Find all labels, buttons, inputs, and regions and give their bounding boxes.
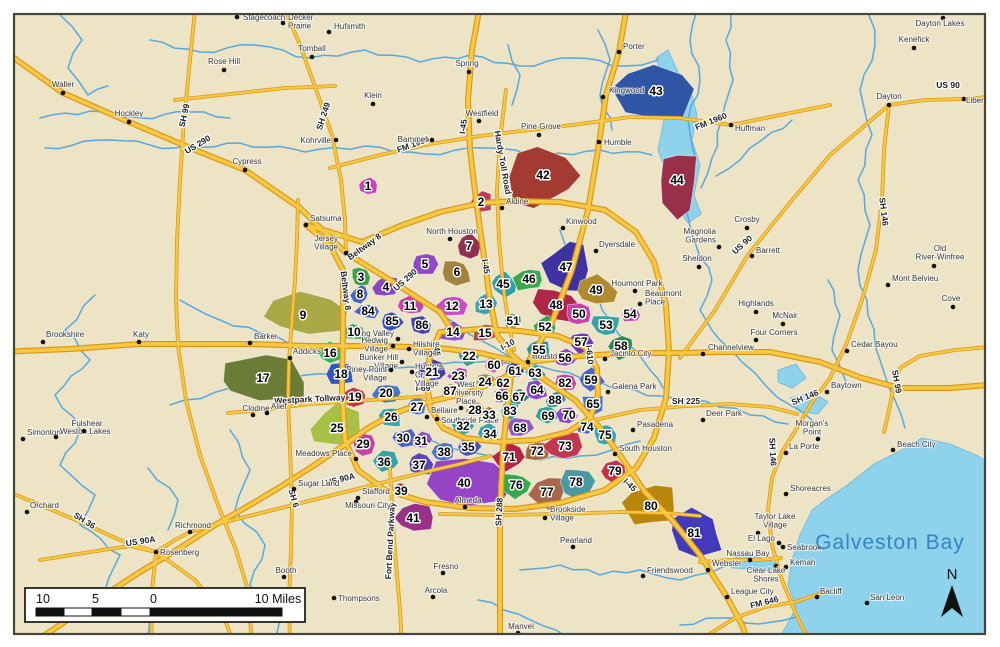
district-marker-62: 62 <box>496 376 510 390</box>
town-label-stafford: Stafford <box>362 487 390 496</box>
town-dot-beach-city <box>891 448 896 453</box>
town-dot-simonton <box>21 437 26 442</box>
district-marker-24: 24 <box>478 375 492 389</box>
district-marker-64: 64 <box>530 383 544 397</box>
town-dot-waller <box>61 91 66 96</box>
town-label-fresno: Fresno <box>434 562 459 571</box>
bay-label: Galveston Bay <box>815 531 965 554</box>
town-dot-highlands <box>754 310 759 315</box>
road-label-sh-146: SH 146 <box>767 437 778 466</box>
town-dot-cedar-bayou <box>845 349 850 354</box>
town-dot-addicks <box>288 356 293 361</box>
district-marker-86: 86 <box>415 318 429 332</box>
town-dot-galena-park <box>606 390 611 395</box>
town-label-hedwig-village: HedwigVillage <box>361 336 388 354</box>
town-label-mcnair: McNair <box>772 311 798 320</box>
town-label-manvel: Manvel <box>508 622 534 631</box>
town-dot-hockley <box>127 120 132 125</box>
district-marker-65: 65 <box>586 397 600 411</box>
town-label-alief: Alief <box>271 402 287 411</box>
town-label-almeda: Almeda <box>454 496 482 505</box>
district-marker-68: 68 <box>513 421 527 435</box>
district-marker-87: 87 <box>443 384 457 398</box>
scale-segment <box>121 608 150 616</box>
scale-tick-5: 5 <box>92 592 99 606</box>
district-marker-23: 23 <box>451 369 465 383</box>
town-label-satsuma: Satsuma <box>310 214 342 223</box>
district-marker-85: 85 <box>385 314 399 328</box>
district-marker-78: 78 <box>569 475 583 489</box>
district-marker-4: 4 <box>383 280 390 294</box>
town-label-klein: Klein <box>364 91 382 100</box>
district-marker-3: 3 <box>358 270 365 284</box>
town-dot-klein <box>371 102 376 107</box>
district-marker-63: 63 <box>528 366 542 380</box>
town-dot-booth <box>282 575 287 580</box>
town-label-missouri-city: Missouri City <box>345 501 391 510</box>
town-dot-hilshire-village <box>407 347 412 352</box>
district-marker-10: 10 <box>347 325 361 339</box>
town-label-spring: Spring <box>455 59 478 68</box>
district-marker-29: 29 <box>356 437 370 451</box>
town-dot-webster <box>706 568 711 573</box>
district-marker-28: 28 <box>468 403 482 417</box>
town-dot-westfield <box>477 119 482 124</box>
town-label-liberty: Liberty <box>966 96 990 105</box>
town-label-highlands: Highlands <box>738 299 774 308</box>
town-label-thompsons: Thompsons <box>338 594 380 603</box>
district-marker-39: 39 <box>394 484 408 498</box>
town-dot-houmont-park <box>633 289 638 294</box>
town-dot-katy <box>137 340 142 345</box>
district-marker-80: 80 <box>644 499 658 513</box>
town-dot-beaumont-place <box>638 302 643 307</box>
town-label-crosby: Crosby <box>734 215 759 224</box>
town-label-hockley: Hockley <box>115 109 143 118</box>
town-label-addicks: Addicks <box>293 347 321 356</box>
town-dot-kingwood <box>601 95 606 100</box>
district-marker-49: 49 <box>589 283 603 297</box>
district-marker-74: 74 <box>580 420 594 434</box>
town-label-tomball: Tomball <box>298 44 326 53</box>
road-label-sh-225: SH 225 <box>672 396 701 406</box>
town-label-fulshear: Fulshear <box>71 419 102 428</box>
town-label-pine-grove: Pine Grove <box>521 122 562 131</box>
town-dot-north-houston <box>448 237 453 242</box>
district-marker-81: 81 <box>687 526 701 540</box>
town-label-richmond: Richmond <box>175 521 211 530</box>
town-label-four-corners: Four Corners <box>750 328 797 337</box>
town-label-katy: Katy <box>133 330 149 339</box>
town-dot-aldine <box>500 206 505 211</box>
town-label-dayton-lakes: Dayton Lakes <box>916 19 965 28</box>
town-dot-friendswood <box>641 574 646 579</box>
town-dot-kenefick <box>912 46 917 51</box>
district-marker-46: 46 <box>522 272 536 286</box>
town-label-brookshire: Brookshire <box>46 330 85 339</box>
town-label-rose-hill: Rose Hill <box>208 57 240 66</box>
district-marker-6: 6 <box>454 265 461 279</box>
district-marker-50: 50 <box>572 307 586 321</box>
town-dot-arcola <box>431 595 436 600</box>
district-marker-60: 60 <box>487 358 501 372</box>
town-label-magnolia-gardens: MagnoliaGardens <box>684 227 717 245</box>
district-marker-26: 26 <box>384 410 398 424</box>
town-dot-pine-grove <box>537 133 542 138</box>
district-marker-75: 75 <box>598 428 612 442</box>
district-marker-40: 40 <box>457 476 471 490</box>
district-marker-30: 30 <box>396 431 410 445</box>
scale-segment <box>64 608 92 616</box>
district-marker-36: 36 <box>377 455 391 469</box>
district-marker-41: 41 <box>406 511 420 525</box>
town-label-arcola: Arcola <box>425 586 448 595</box>
town-label-decker-prairie: DeckerPrairie <box>288 13 314 31</box>
town-dot-barrett <box>750 254 755 259</box>
town-dot-nassau-bay <box>748 558 753 563</box>
district-marker-32: 32 <box>456 419 470 433</box>
town-label-houmont-park: Houmont Park <box>611 279 663 288</box>
district-marker-76: 76 <box>509 478 523 492</box>
district-marker-15: 15 <box>478 326 492 340</box>
town-dot-porter <box>617 50 622 55</box>
town-dot-southside-place <box>435 417 440 422</box>
district-marker-33: 33 <box>482 408 496 422</box>
town-dot-thompsons <box>332 596 337 601</box>
district-marker-77: 77 <box>540 485 554 499</box>
town-label-sugar-land: Sugar Land <box>298 479 339 488</box>
scale-tick-0: 0 <box>150 592 157 606</box>
town-label-westfield: Westfield <box>466 109 499 118</box>
town-label-webster: Webster <box>712 559 742 568</box>
town-dot-weston-lakes <box>54 435 59 440</box>
town-dot-four-corners <box>754 338 759 343</box>
district-marker-67: 67 <box>512 390 526 404</box>
town-label-jersey-village: JerseyVillage <box>314 234 338 252</box>
district-marker-43: 43 <box>649 84 663 98</box>
town-dot-houston <box>526 360 531 365</box>
district-marker-48: 48 <box>549 298 563 312</box>
town-label-mont-belvieu: Mont Belvieu <box>892 274 938 283</box>
district-marker-37: 37 <box>412 458 426 472</box>
town-dot-humble <box>597 140 602 145</box>
scale-segment <box>150 608 282 616</box>
town-label-league-city: League City <box>731 587 774 596</box>
town-label-shoreacres: Shoreacres <box>790 484 831 493</box>
town-dot-stafford <box>356 496 361 501</box>
town-dot-pasadena <box>631 428 636 433</box>
scale-tick-10-miles: 10 Miles <box>255 592 302 606</box>
town-label-san-leon: San Leon <box>870 593 904 602</box>
town-dot-cove <box>951 305 956 310</box>
town-label-orchard: Orchard <box>30 501 59 510</box>
town-dot-el-lago <box>777 541 782 546</box>
town-dot-piney-point-village <box>389 368 394 373</box>
town-label-channelview: Channelview <box>708 343 754 352</box>
road-label-us-90: US 90 <box>936 80 960 90</box>
scale-segment <box>36 608 64 616</box>
district-marker-55: 55 <box>532 343 546 357</box>
district-marker-88: 88 <box>548 393 562 407</box>
town-dot-kohrville <box>334 138 339 143</box>
town-label-barker: Barker <box>254 332 278 341</box>
district-marker-58: 58 <box>614 339 628 353</box>
town-label-huffman: Huffman <box>735 124 765 133</box>
town-label-nassau-bay: Nassau Bay <box>726 549 769 558</box>
town-dot-orchard <box>25 510 30 515</box>
district-marker-12: 12 <box>445 299 459 313</box>
district-marker-42: 42 <box>536 168 550 182</box>
road-label-sh-288: SH 288 <box>493 497 504 526</box>
town-label-kenefick: Kenefick <box>899 35 931 44</box>
town-dot-morgan-s-point <box>816 437 821 442</box>
town-dot-bammel <box>430 138 435 143</box>
district-marker-22: 22 <box>462 349 476 363</box>
town-label-cedar-bayou: Cedar Bayou <box>851 340 898 349</box>
town-dot-league-city <box>725 595 730 600</box>
town-dot-spring-valley <box>396 337 401 342</box>
town-dot-kinwood <box>561 226 566 231</box>
district-marker-14: 14 <box>446 325 460 339</box>
town-label-north-houston: North Houston <box>426 227 478 236</box>
town-label-humble: Humble <box>604 138 632 147</box>
town-dot-crosby <box>745 226 750 231</box>
town-dot-rosenberg <box>154 550 159 555</box>
district-marker-38: 38 <box>437 445 451 459</box>
town-label-rosenberg: Rosenberg <box>160 548 199 557</box>
town-dot-dyersdale <box>594 249 599 254</box>
town-dot-tomball <box>310 55 315 60</box>
town-dot-jacinto-city <box>603 357 608 362</box>
town-label-barrett: Barrett <box>756 246 781 255</box>
district-marker-59: 59 <box>584 373 598 387</box>
town-dot-sugar-land <box>292 487 297 492</box>
town-dot-sheldon <box>697 265 702 270</box>
district-marker-51: 51 <box>506 314 520 328</box>
town-label-deer-park: Deer Park <box>706 409 743 418</box>
town-dot-bacliff <box>815 595 820 600</box>
district-marker-17: 17 <box>256 371 270 385</box>
town-label-la-porte: La Porte <box>789 442 820 451</box>
town-label-hilshire-village: HilshireVillage <box>413 340 440 358</box>
town-dot-mcnair <box>781 322 786 327</box>
town-label-meadows-place: Meadows Place <box>296 449 353 458</box>
district-marker-19: 19 <box>348 390 362 404</box>
district-marker-53: 53 <box>599 318 613 332</box>
scale-segment <box>92 608 121 616</box>
town-dot-brookshire <box>41 340 46 345</box>
scale-tick-10: 10 <box>36 592 50 606</box>
town-label-south-houston: South Houston <box>619 444 672 453</box>
town-dot-fresno <box>441 571 446 576</box>
district-marker-57: 57 <box>574 335 588 349</box>
town-label-booth: Booth <box>276 566 297 575</box>
town-label-baytown: Baytown <box>831 381 862 390</box>
town-dot-satsuma <box>304 223 309 228</box>
town-label-beach-city: Beach City <box>897 440 936 449</box>
town-dot-huffman <box>729 123 734 128</box>
district-marker-25: 25 <box>330 421 344 435</box>
town-dot-alief <box>265 411 270 416</box>
district-marker-61: 61 <box>508 364 522 378</box>
town-label-bacliff: Bacliff <box>820 587 842 596</box>
district-marker-7: 7 <box>466 239 473 253</box>
town-dot-jersey-village <box>344 251 349 256</box>
district-marker-8: 8 <box>357 287 364 301</box>
district-marker-45: 45 <box>496 277 510 291</box>
town-dot-rose-hill <box>222 68 227 73</box>
town-label-friendswood: Friendswood <box>647 566 693 575</box>
town-label-bammel: Bammel <box>398 135 428 144</box>
town-dot-barker <box>248 341 253 346</box>
road-label-i-45: I-45 <box>457 118 469 134</box>
town-label-kemah: Kemah <box>790 558 815 567</box>
district-marker-83: 83 <box>503 404 517 418</box>
district-marker-44: 44 <box>670 173 684 187</box>
town-dot-channelview <box>701 352 706 357</box>
district-marker-13: 13 <box>479 297 493 311</box>
district-marker-69: 69 <box>541 409 555 423</box>
north-label: N <box>947 566 958 583</box>
town-dot-magnolia-gardens <box>717 245 722 250</box>
district-marker-52: 52 <box>538 320 552 334</box>
town-label-kohrville: Kohrville <box>300 136 331 145</box>
town-dot-pearland <box>571 545 576 550</box>
houston-super-neighborhoods-map: SH 99US 290SH 249FM 1960I-45Hardy Toll R… <box>0 0 1000 647</box>
town-label-galena-park: Galena Park <box>612 382 657 391</box>
district-marker-71: 71 <box>502 450 516 464</box>
scale-bar: 105010 Miles <box>25 588 305 622</box>
town-dot-bunker-hill-village <box>400 360 405 365</box>
district-marker-1: 1 <box>365 179 372 193</box>
town-dot-decker-prairie <box>281 21 286 26</box>
district-marker-56: 56 <box>558 351 572 365</box>
district-marker-9: 9 <box>300 308 307 322</box>
district-marker-11: 11 <box>404 299 417 313</box>
district-marker-84: 84 <box>361 304 375 318</box>
town-label-porter: Porter <box>623 42 645 51</box>
town-label-waller: Waller <box>52 80 75 89</box>
town-dot-hufsmith <box>327 30 332 35</box>
town-label-pasadena: Pasadena <box>637 420 674 429</box>
town-dot-hedwig-village <box>391 344 396 349</box>
town-dot-spring <box>467 70 472 75</box>
town-label-kinwood: Kinwood <box>566 217 597 226</box>
town-dot-san-leon <box>865 601 870 606</box>
town-dot-mont-belvieu <box>886 283 891 288</box>
district-marker-66: 66 <box>495 389 509 403</box>
town-dot-almeda <box>463 505 468 510</box>
district-marker-82: 82 <box>558 376 572 390</box>
district-marker-70: 70 <box>562 408 576 422</box>
town-dot-deer-park <box>701 418 706 423</box>
district-marker-21: 21 <box>425 365 439 379</box>
district-marker-20: 20 <box>379 386 393 400</box>
town-dot-richmond <box>188 530 193 535</box>
town-label-dyersdale: Dyersdale <box>599 240 636 249</box>
town-dot-south-houston <box>613 452 618 457</box>
town-label-pearland: Pearland <box>560 536 592 545</box>
town-dot-stagecoach <box>235 15 240 20</box>
town-dot-west-university-place <box>459 406 464 411</box>
town-dot-dayton <box>887 103 892 108</box>
town-dot-baytown <box>825 390 830 395</box>
district-marker-72: 72 <box>530 444 544 458</box>
town-label-cypress: Cypress <box>232 157 261 166</box>
town-dot-brookside-village <box>543 516 548 521</box>
district-marker-16: 16 <box>323 346 337 360</box>
town-label-hufsmith: Hufsmith <box>334 22 366 31</box>
town-dot-fulshear <box>82 429 87 434</box>
map-content: SH 99US 290SH 249FM 1960I-45Hardy Toll R… <box>0 0 1000 647</box>
district-marker-34: 34 <box>483 427 497 441</box>
district-marker-54: 54 <box>623 307 637 321</box>
district-marker-5: 5 <box>422 257 429 271</box>
town-dot-meadows-place <box>354 457 359 462</box>
town-dot-shoreacres <box>784 492 789 497</box>
town-dot-hunters-creek-village <box>410 370 415 375</box>
town-label-sheldon: Sheldon <box>682 254 711 263</box>
district-marker-2: 2 <box>478 195 485 209</box>
district-marker-79: 79 <box>608 464 622 478</box>
town-dot-la-porte <box>784 451 789 456</box>
town-label-cove: Cove <box>942 294 961 303</box>
town-dot-bellaire <box>425 415 430 420</box>
district-marker-35: 35 <box>461 440 475 454</box>
map-page: SH 99US 290SH 249FM 1960I-45Hardy Toll R… <box>0 0 1000 647</box>
town-dot-old-river-winfree <box>932 264 937 269</box>
town-dot-seabrook <box>781 545 786 550</box>
town-dot-clodine <box>251 413 256 418</box>
district-marker-27: 27 <box>410 400 424 414</box>
district-marker-73: 73 <box>558 439 572 453</box>
town-label-kingwood: Kingwood <box>609 86 644 95</box>
district-marker-18: 18 <box>334 367 348 381</box>
town-dot-cypress <box>243 168 248 173</box>
district-marker-31: 31 <box>414 434 428 448</box>
town-label-dayton: Dayton <box>876 92 901 101</box>
town-label-bellaire: Bellaire <box>431 406 458 415</box>
district-marker-47: 47 <box>559 260 573 274</box>
town-label-el-lago: El Lago <box>748 534 776 543</box>
town-label-aldine: Aldine <box>506 197 529 206</box>
